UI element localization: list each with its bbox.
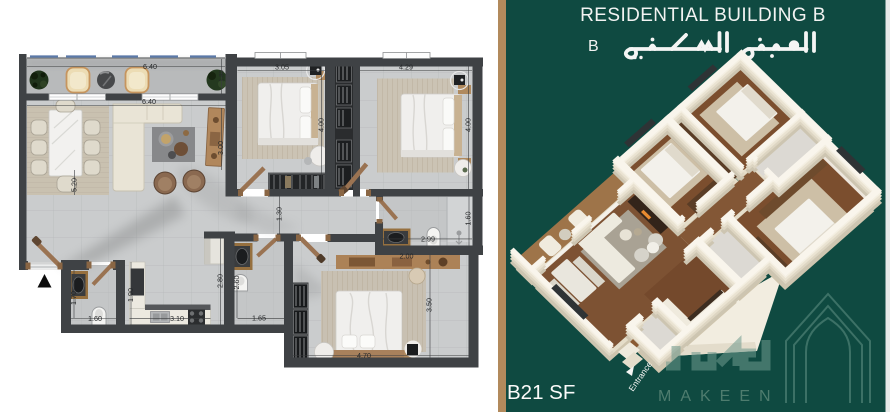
svg-text:6.40: 6.40 bbox=[142, 97, 156, 106]
svg-text:1.60: 1.60 bbox=[464, 212, 473, 226]
svg-text:B: B bbox=[588, 38, 599, 55]
svg-text:1.30: 1.30 bbox=[275, 207, 284, 221]
svg-text:1.90: 1.90 bbox=[126, 288, 135, 302]
svg-text:2.99: 2.99 bbox=[421, 234, 435, 243]
svg-text:3.10: 3.10 bbox=[170, 314, 184, 323]
svg-text:3.50: 3.50 bbox=[425, 298, 434, 312]
svg-text:1.70: 1.70 bbox=[69, 291, 78, 305]
svg-text:4.00: 4.00 bbox=[317, 118, 326, 132]
svg-text:5.20: 5.20 bbox=[70, 178, 79, 192]
svg-text:RESIDENTIAL BUILDING B: RESIDENTIAL BUILDING B bbox=[580, 5, 826, 26]
svg-text:3.05: 3.05 bbox=[275, 63, 289, 72]
svg-text:2.80: 2.80 bbox=[216, 274, 225, 288]
svg-text:MAKEEN: MAKEEN bbox=[658, 388, 780, 405]
svg-text:1.80: 1.80 bbox=[220, 70, 226, 82]
svg-text:2.60: 2.60 bbox=[232, 276, 241, 290]
svg-text:1.65: 1.65 bbox=[252, 313, 266, 322]
svg-text:1.60: 1.60 bbox=[88, 314, 102, 323]
svg-text:4.70: 4.70 bbox=[357, 351, 371, 360]
svg-text:4.29: 4.29 bbox=[399, 63, 413, 72]
svg-text:2.00: 2.00 bbox=[400, 252, 414, 261]
svg-text:3.00: 3.00 bbox=[216, 141, 225, 155]
svg-text:4.00: 4.00 bbox=[464, 118, 473, 132]
svg-text:B21 SF: B21 SF bbox=[507, 381, 575, 404]
svg-text:6.40: 6.40 bbox=[143, 62, 157, 71]
